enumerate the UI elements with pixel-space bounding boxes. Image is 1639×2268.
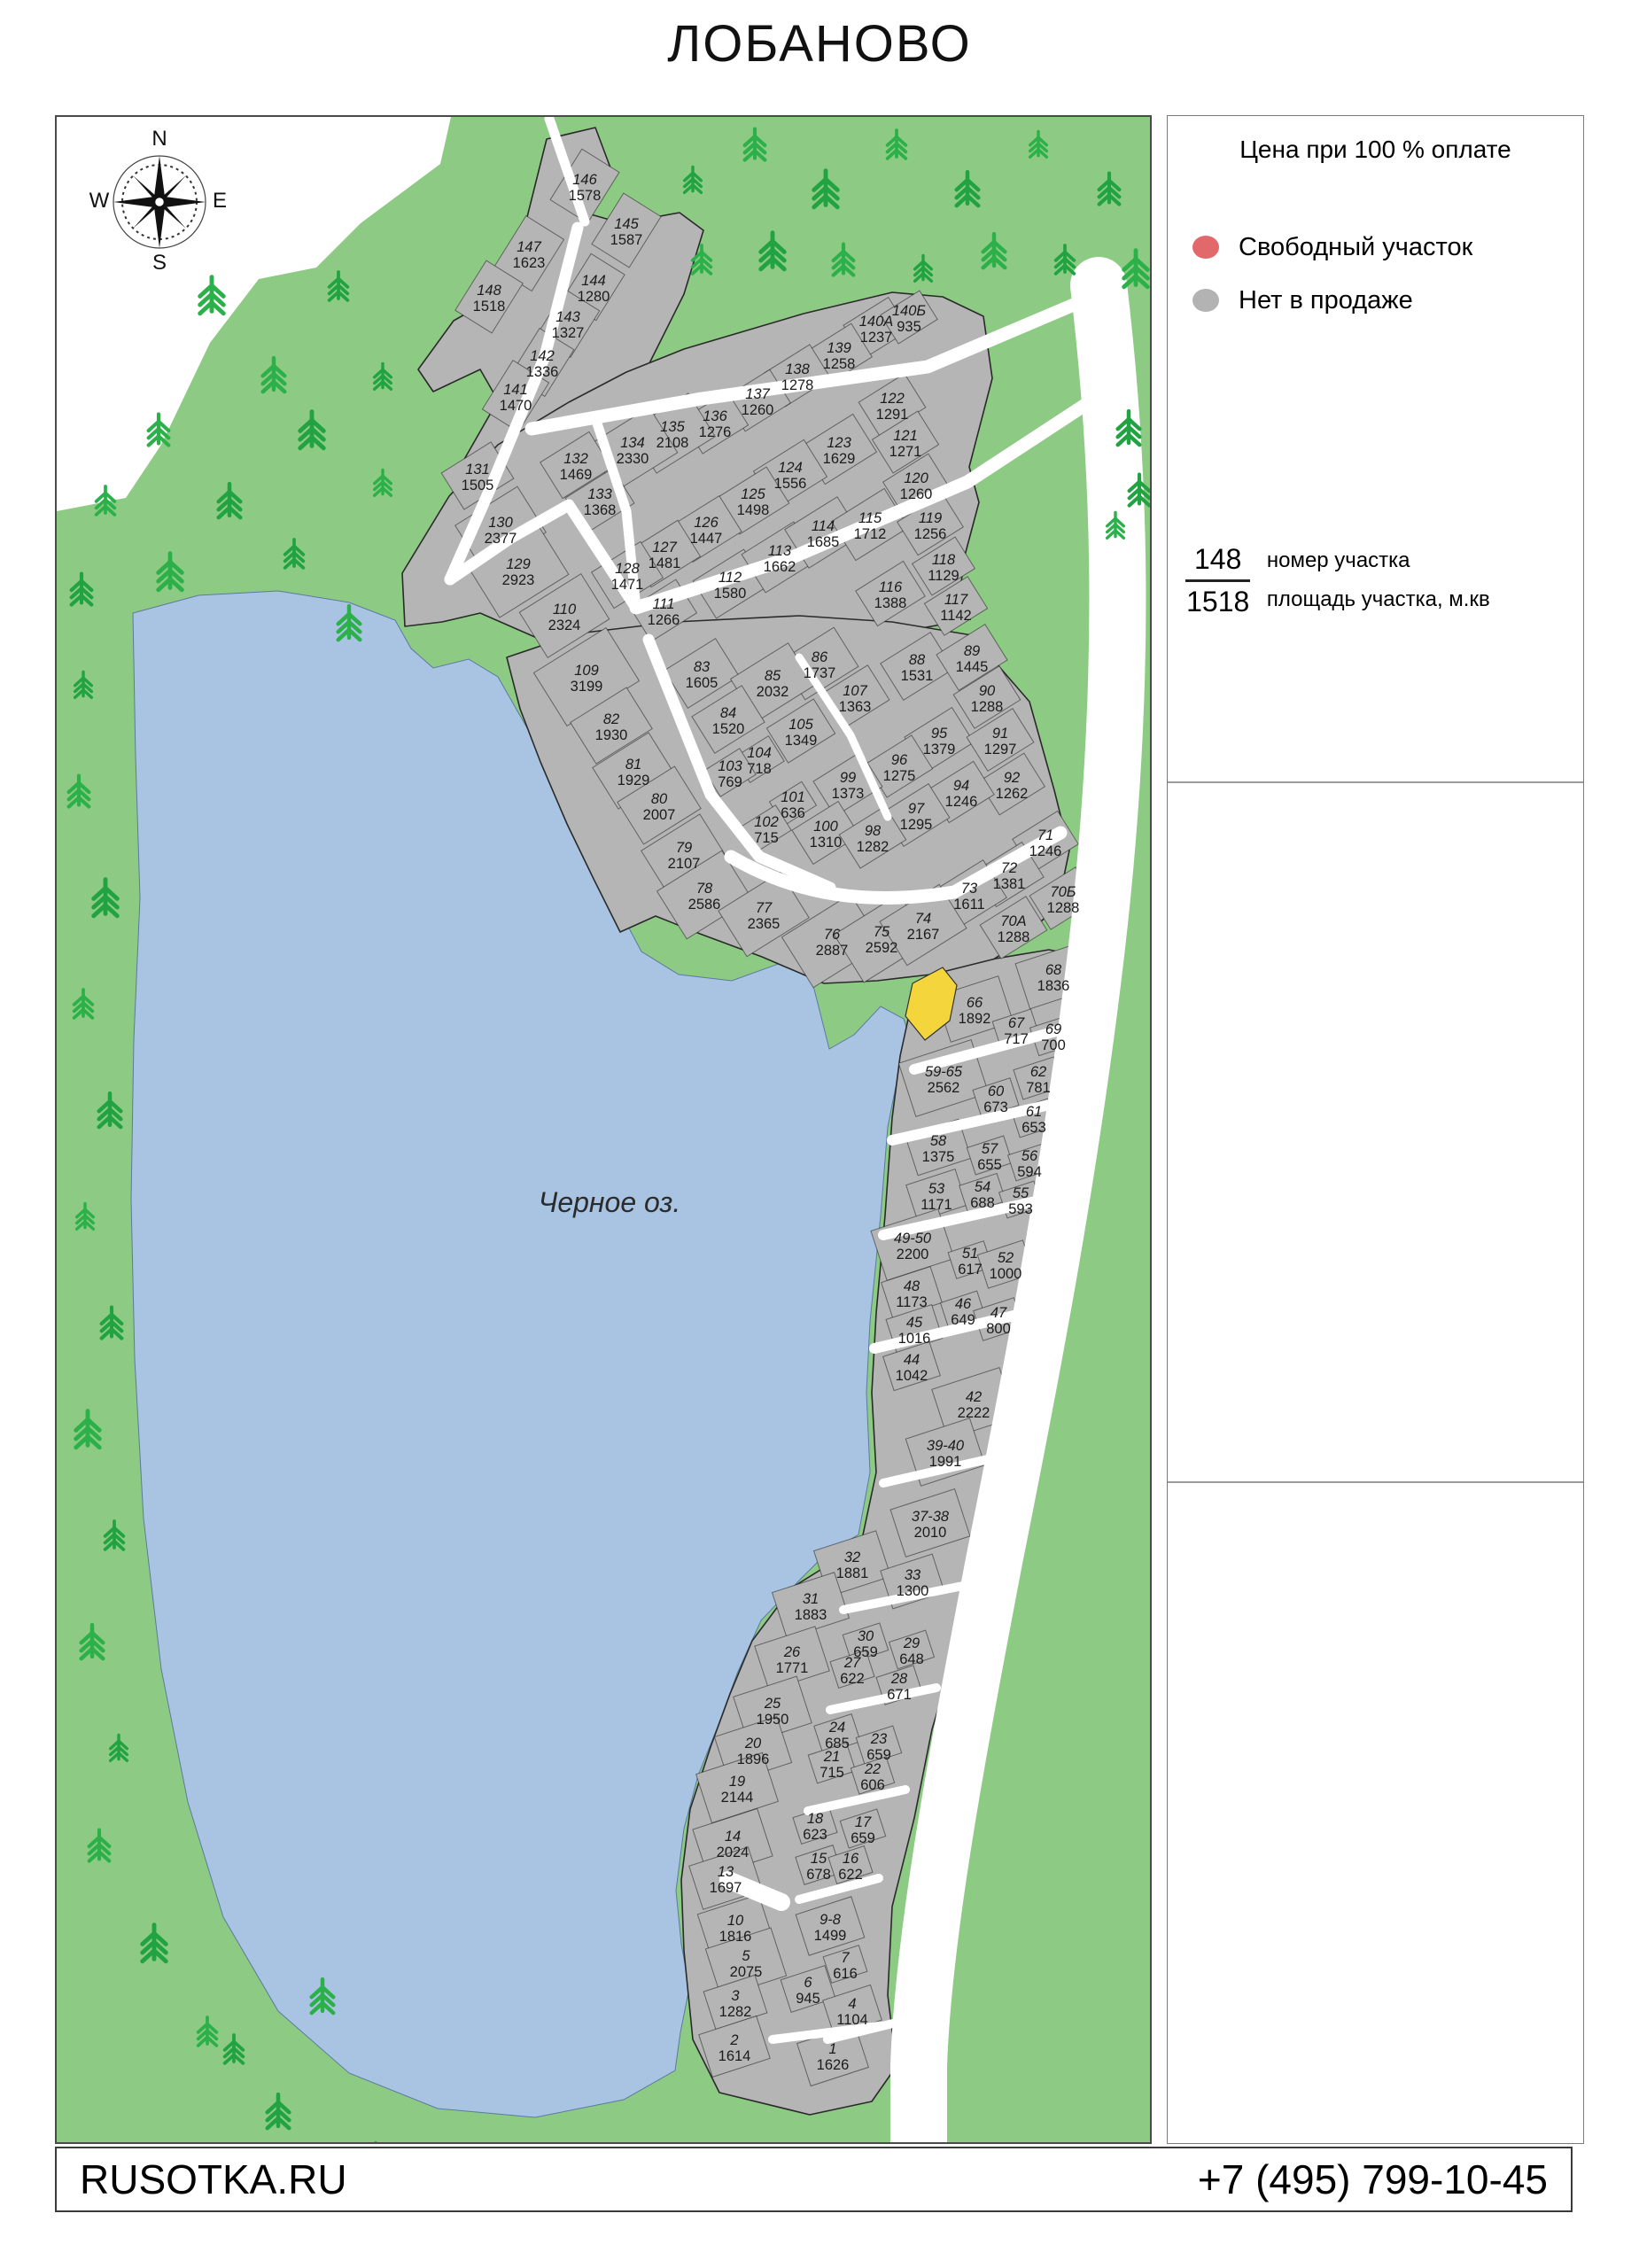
plot-label-113[interactable]: 1131662 xyxy=(764,543,796,575)
compass-rose: NESW xyxy=(89,127,227,275)
plot-label-39-40[interactable]: 39-401991 xyxy=(927,1438,965,1470)
plot-label-126[interactable]: 1261447 xyxy=(690,515,723,547)
plot-label-104[interactable]: 104718 xyxy=(747,745,772,777)
plot-label-102[interactable]: 102715 xyxy=(754,814,779,846)
plot-key-labels: номер участка площадь участка, м.кв xyxy=(1267,541,1490,619)
plot-label-144[interactable]: 1441280 xyxy=(578,273,610,305)
plot-label-130[interactable]: 1302377 xyxy=(485,515,517,547)
not-for-sale-dot-icon xyxy=(1192,289,1219,312)
plot-label-129[interactable]: 1292923 xyxy=(502,556,535,588)
plot-label-143[interactable]: 1431327 xyxy=(552,309,585,341)
page: { "title": "ЛОБАНОВО", "legend": { "titl… xyxy=(0,0,1639,2268)
plot-label-135[interactable]: 1352108 xyxy=(656,419,689,451)
plot-label-146[interactable]: 1461578 xyxy=(569,172,602,204)
plot-label-114[interactable]: 1141685 xyxy=(807,518,840,550)
plot-label-139[interactable]: 1391258 xyxy=(823,340,856,372)
legend-divider xyxy=(1168,781,1583,783)
plot-label-119[interactable]: 1191256 xyxy=(914,510,947,542)
free-plot-dot-icon xyxy=(1192,236,1219,259)
legend-item-not-for-sale[interactable]: Нет в продаже xyxy=(1192,283,1413,318)
plot-label-131[interactable]: 1311505 xyxy=(462,462,494,493)
site-url[interactable]: RUSOTKA.RU xyxy=(80,2155,347,2203)
plot-label-115[interactable]: 1151712 xyxy=(854,510,887,542)
plot-label-120[interactable]: 1201260 xyxy=(900,470,933,502)
plot-label-107[interactable]: 1071363 xyxy=(839,683,872,715)
plot-label-125[interactable]: 1251498 xyxy=(737,486,770,518)
map-canvas: 1461578145158714716231441280148151814313… xyxy=(57,117,1150,2142)
legend-key: 148 1518 номер участка площадь участка, … xyxy=(1185,541,1566,619)
plot-label-100[interactable]: 1001310 xyxy=(810,819,843,850)
plot-label-70Б[interactable]: 70Б1288 xyxy=(1047,884,1080,916)
plot-label-117[interactable]: 1171142 xyxy=(940,592,971,624)
plot-label-103[interactable]: 103769 xyxy=(718,758,742,790)
plot-label-116[interactable]: 1161388 xyxy=(874,579,907,611)
plot-number-example: 148 xyxy=(1185,543,1250,582)
phone-number[interactable]: +7 (495) 799-10-45 xyxy=(1198,2155,1548,2203)
plot-label-109[interactable]: 1093199 xyxy=(571,663,603,695)
lake-label: Черное оз. xyxy=(539,1186,680,1218)
plot-label-124[interactable]: 1241556 xyxy=(774,460,807,492)
plot-area-example: 1518 xyxy=(1185,582,1250,618)
tree-icon xyxy=(149,415,169,446)
legend-item-label: Свободный участок xyxy=(1239,233,1472,262)
plot-label-138[interactable]: 1381278 xyxy=(781,361,814,393)
legend-item-free[interactable]: Свободный участок xyxy=(1192,229,1472,265)
plot-label-59-65[interactable]: 59-652562 xyxy=(925,1064,963,1096)
site-map[interactable]: 1461578145158714716231441280148151814313… xyxy=(55,115,1152,2144)
legend-title: Цена при 100 % оплате xyxy=(1168,136,1583,164)
plot-label-122[interactable]: 1221291 xyxy=(876,391,909,423)
plot-label-112[interactable]: 1121580 xyxy=(714,570,747,602)
plot-label-145[interactable]: 1451587 xyxy=(610,216,643,248)
compass-letter: E xyxy=(213,189,227,213)
plot-label-132[interactable]: 1321469 xyxy=(560,451,593,483)
plot-label-140А[interactable]: 140А1237 xyxy=(859,314,894,346)
plot-label-134[interactable]: 1342330 xyxy=(617,435,649,467)
plot-key-fraction: 148 1518 xyxy=(1185,543,1250,618)
tree-icon xyxy=(200,277,224,314)
plot-label-123[interactable]: 1231629 xyxy=(823,435,856,467)
plot-label-147[interactable]: 1471623 xyxy=(513,239,546,271)
plot-label-136[interactable]: 1361276 xyxy=(699,408,732,440)
plot-label-128[interactable]: 1281471 xyxy=(611,561,644,593)
compass-letter: W xyxy=(89,189,110,213)
legend-item-label: Нет в продаже xyxy=(1239,286,1413,315)
plot-label-49-50[interactable]: 49-502200 xyxy=(894,1231,932,1262)
compass-letter: S xyxy=(152,251,167,275)
plot-label-101[interactable]: 101636 xyxy=(781,789,805,821)
plot-label-142[interactable]: 1421336 xyxy=(526,348,559,380)
page-title: ЛОБАНОВО xyxy=(0,14,1639,74)
plot-label-121[interactable]: 1211271 xyxy=(889,428,922,460)
plot-label-37-38[interactable]: 37-382010 xyxy=(912,1509,950,1541)
footer: RUSOTKA.RU +7 (495) 799-10-45 xyxy=(55,2147,1573,2212)
legend-panel: Цена при 100 % оплате Свободный участок … xyxy=(1167,115,1584,2144)
plot-label-148[interactable]: 1481518 xyxy=(473,283,506,315)
plot-label-105[interactable]: 1051349 xyxy=(785,717,818,749)
plot-label-118[interactable]: 1181129 xyxy=(928,552,959,584)
tree-icon xyxy=(97,486,115,515)
plot-label-110[interactable]: 1102324 xyxy=(548,602,581,633)
plot-number-label: номер участка xyxy=(1267,541,1490,580)
plot-label-137[interactable]: 1371260 xyxy=(742,386,774,418)
plot-label-127[interactable]: 1271481 xyxy=(649,540,681,571)
plot-label-133[interactable]: 1331368 xyxy=(584,486,617,518)
plot-label-141[interactable]: 1411470 xyxy=(500,382,532,414)
plot-label-70А[interactable]: 70А1288 xyxy=(998,913,1030,945)
plot-area-label: площадь участка, м.кв xyxy=(1267,580,1490,619)
compass-letter: N xyxy=(151,127,167,151)
legend-divider xyxy=(1168,1481,1583,1483)
plot-label-140Б[interactable]: 140Б935 xyxy=(892,303,927,335)
